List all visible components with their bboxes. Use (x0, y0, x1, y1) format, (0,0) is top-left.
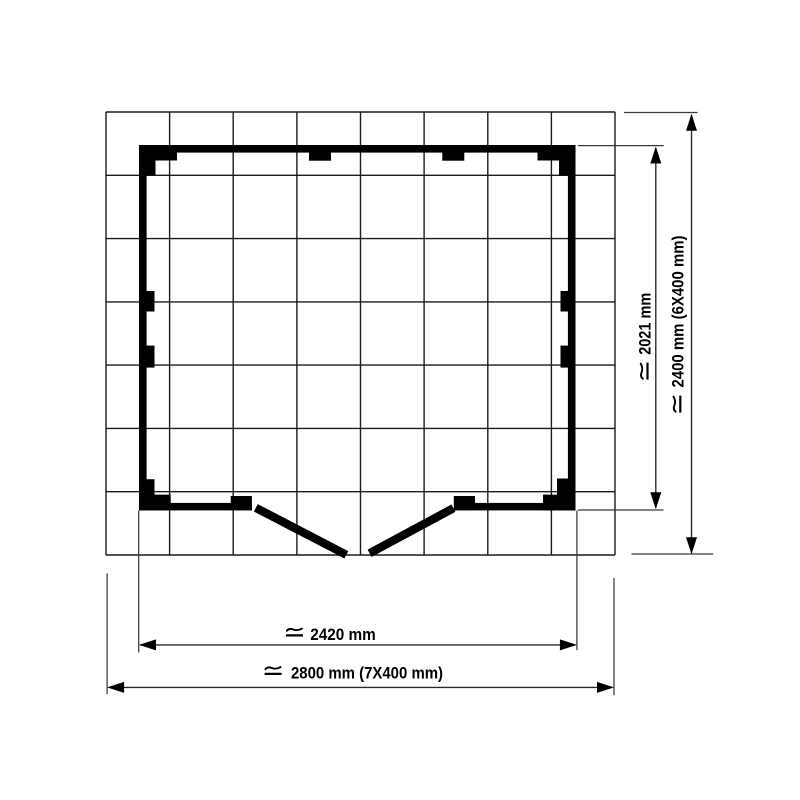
svg-text:2420 mm: 2420 mm (310, 626, 376, 644)
svg-text:2400 mm (6X400 mm): 2400 mm (6X400 mm) (670, 236, 688, 388)
svg-text:2800 mm (7X400 mm): 2800 mm (7X400 mm) (291, 665, 443, 683)
svg-text:2021 mm: 2021 mm (637, 293, 655, 355)
